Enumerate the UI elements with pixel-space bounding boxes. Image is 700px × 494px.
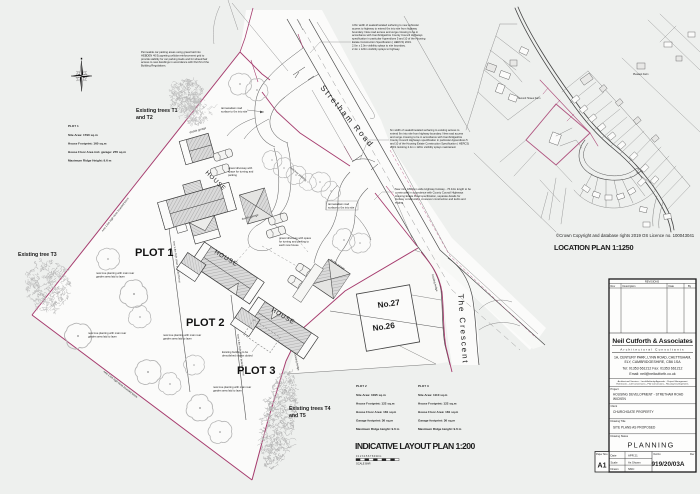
svg-text:SITE PLANS AS PROPOSED: SITE PLANS AS PROPOSED xyxy=(613,425,656,429)
svg-text:Existing tree T3: Existing tree T3 xyxy=(18,252,57,258)
svg-text:Rev: Rev xyxy=(611,284,616,288)
svg-text:Maximum Ridge Height: 9.6 m: Maximum Ridge Height: 9.6 m xyxy=(418,427,462,431)
svg-text:garden area laid to lawn: garden area laid to lawn xyxy=(96,274,125,278)
svg-text:New min. 1800mm wide Highway f: New min. 1800mm wide Highway footway - 7… xyxy=(395,187,471,191)
svg-text:extend 6m into site from highw: extend 6m into site from highway boundar… xyxy=(390,131,464,135)
svg-text:©Crown Copyright and database: ©Crown Copyright and database rights 201… xyxy=(556,233,695,238)
svg-text:and T2: and T2 xyxy=(136,115,153,121)
svg-text:6m width of sealed/metaled sur: 6m width of sealed/metaled surfacing to … xyxy=(390,128,460,132)
svg-text:PLOT 1: PLOT 1 xyxy=(135,247,174,259)
svg-text:Client: Client xyxy=(611,404,618,408)
svg-text:tarmacadam road: tarmacadam road xyxy=(221,106,243,110)
svg-text:919/20/03A: 919/20/03A xyxy=(651,461,684,468)
svg-text:Garage footprint: 36 sq.m: Garage footprint: 36 sq.m xyxy=(418,419,455,423)
svg-text:boundary. New road access and: boundary. New road access and verge cros… xyxy=(352,30,419,34)
svg-text:provide stability for car park: provide stability for car parking loads … xyxy=(141,57,207,61)
svg-text:Estate Construction Specificat: Estate Construction Specification ( HERC… xyxy=(352,40,412,44)
svg-text:Existing building to be: Existing building to be xyxy=(222,350,249,354)
svg-text:Scale: Scale xyxy=(611,460,618,464)
svg-text:Description: Description xyxy=(623,284,637,288)
svg-text:LOCATION PLAN 1:1250: LOCATION PLAN 1:1250 xyxy=(554,243,633,252)
svg-text:PLOT 3: PLOT 3 xyxy=(237,365,276,377)
svg-text:Existing trees T4: Existing trees T4 xyxy=(289,406,331,412)
svg-text:Garage footprint: 36 sq.m: Garage footprint: 36 sq.m xyxy=(356,419,393,423)
svg-text:Drawn: Drawn xyxy=(611,467,620,471)
svg-text:Building Regulations.: Building Regulations. xyxy=(141,64,167,68)
svg-text:House Floor Area incl. garage:: House Floor Area incl. garage: 255 sq.m xyxy=(68,150,126,154)
svg-text:Project: Project xyxy=(611,387,619,391)
svg-text:new tree planting with main re: new tree planting with main rear xyxy=(96,271,134,275)
svg-text:each new house: each new house xyxy=(279,243,299,247)
svg-text:2.4m x 120m visibility splays: 2.4m x 120m visibility splays to highway… xyxy=(352,47,400,51)
svg-text:access to new dwellings in acc: access to new dwellings in accordance wi… xyxy=(141,60,209,64)
svg-text:County Council Highways specif: County Council Highways specification in… xyxy=(390,138,468,142)
svg-text:4.8m width of sealed/metaled s: 4.8m width of sealed/metaled surfacing t… xyxy=(352,23,419,27)
svg-text:ELY, CAMBRIDGESHIRE, CB6 1SA: ELY, CAMBRIDGESHIRE, CB6 1SA xyxy=(624,360,681,364)
svg-text:parking: parking xyxy=(228,173,237,177)
svg-text:Drawing Status: Drawing Status xyxy=(611,434,629,438)
svg-text:new tree planting with main re: new tree planting with main rear xyxy=(213,385,251,389)
svg-text:for turning and parking to: for turning and parking to xyxy=(279,239,309,243)
svg-text:surface to 6m into site: surface to 6m into site xyxy=(328,205,355,209)
svg-text:NMC: NMC xyxy=(628,467,634,471)
svg-text:gravel driveway with: gravel driveway with xyxy=(228,166,253,170)
svg-text:PLOT 3: PLOT 3 xyxy=(418,384,429,388)
svg-text:Housing Estate Road specificat: Housing Estate Road specification, separ… xyxy=(395,194,460,198)
svg-text:CHURCHGATE PROPERTY: CHURCHGATE PROPERTY xyxy=(613,410,654,414)
svg-text:Architectural Services - Local: Architectural Services - Local Authority… xyxy=(618,380,688,383)
svg-text:surface to 6m into site: surface to 6m into site xyxy=(221,109,248,113)
svg-text:constructed in accordance with: constructed in accordance with County Co… xyxy=(395,190,464,194)
svg-text:INDICATIVE LAYOUT PLAN 1:200: INDICATIVE LAYOUT PLAN 1:200 xyxy=(355,441,476,451)
svg-text:PLOT 1: PLOT 1 xyxy=(68,124,79,128)
svg-text:Architectural Consultants: Architectural Consultants xyxy=(620,348,684,352)
svg-text:House Floor Area: 181 sq.m: House Floor Area: 181 sq.m xyxy=(356,410,396,414)
svg-text:PLOT 2: PLOT 2 xyxy=(186,317,225,329)
svg-text:new tree planting with main re: new tree planting with main rear xyxy=(88,331,126,335)
svg-text:Paper Size: Paper Size xyxy=(596,453,608,456)
svg-text:WICKEN: WICKEN xyxy=(613,397,626,401)
svg-text:REVISIONS: REVISIONS xyxy=(645,279,659,283)
svg-text:and 10 of the Housing Estate C: and 10 of the Housing Estate Constructio… xyxy=(390,142,469,146)
svg-text:accordance with Cambridgeshire: accordance with Cambridgeshire County Co… xyxy=(352,33,423,37)
svg-text:space for turning and: space for turning and xyxy=(228,169,254,173)
svg-text:HEBDEN 40 Ecogreting cellular: HEBDEN 40 Ecogreting cellular reinforcem… xyxy=(141,53,205,57)
svg-text:new tree planting with main re: new tree planting with main rear xyxy=(163,333,201,337)
svg-text:garden area laid to lawn: garden area laid to lawn xyxy=(213,388,242,392)
svg-text:APR 21: APR 21 xyxy=(628,454,638,458)
svg-text:Email: neil@neilcutforth.co.uk: Email: neil@neilcutforth.co.uk xyxy=(629,372,675,376)
svg-text:access to highway to extend 6m: access to highway to extend 6m into site… xyxy=(352,26,418,30)
svg-text:PLOT 2: PLOT 2 xyxy=(356,384,367,388)
svg-text:edging.: edging. xyxy=(395,201,404,205)
svg-text:House Floor Area: 181 sq.m: House Floor Area: 181 sq.m xyxy=(418,410,458,414)
svg-text:Dw.No: Dw.No xyxy=(654,453,662,456)
svg-text:Date: Date xyxy=(611,454,617,458)
svg-text:garden area laid to lawn: garden area laid to lawn xyxy=(88,334,117,338)
svg-text:Site Area: 1790 sq.m: Site Area: 1790 sq.m xyxy=(68,133,98,137)
svg-text:tarmacadam road: tarmacadam road xyxy=(328,202,350,206)
svg-text:specification in particular Ap: specification in particular Appendices 5… xyxy=(352,37,426,41)
svg-text:Maximum Ridge Height: 9.6 m: Maximum Ridge Height: 9.6 m xyxy=(356,427,400,431)
svg-text:0 1 2 3 4 5 6 7 8 9: 0 1 2 3 4 5 6 7 8 9 10 m xyxy=(356,455,381,458)
svg-text:2019. Existing 2.4m x 120m vis: 2019. Existing 2.4m x 120m visibility sp… xyxy=(390,145,456,149)
svg-text:1A, CENTURY PARK, LYNN ROAD, C: 1A, CENTURY PARK, LYNN ROAD, CHETTISHAM, xyxy=(614,356,691,360)
svg-text:House Footprint: 160 sq.m: House Footprint: 160 sq.m xyxy=(68,142,107,146)
svg-text:Drawing Title: Drawing Title xyxy=(611,419,627,423)
svg-text:Pleasant Farm: Pleasant Farm xyxy=(633,73,649,76)
svg-text:A1: A1 xyxy=(598,463,607,470)
svg-text:PLANNING: PLANNING xyxy=(628,441,675,450)
svg-text:Tel: 01353 661212 Fax: 01353: Tel: 01353 661212 Fax: 01353 661212 xyxy=(623,367,683,371)
svg-text:Site Area: 1110 sq.m: Site Area: 1110 sq.m xyxy=(418,393,448,397)
svg-text:Neil Cutforth & Associates: Neil Cutforth & Associates xyxy=(612,338,693,345)
svg-text:House Footprint: 122 sq.m: House Footprint: 122 sq.m xyxy=(356,402,395,406)
svg-text:and T5: and T5 xyxy=(289,413,306,419)
svg-text:House Footprint: 122 sq.m: House Footprint: 122 sq.m xyxy=(418,402,457,406)
svg-text:Site Area: 1095 sq.m: Site Area: 1095 sq.m xyxy=(356,393,386,397)
svg-text:Maximum Ridge Height: 9.6 m: Maximum Ridge Height: 9.6 m xyxy=(68,159,112,163)
svg-text:2.0m x 2.0m visibility splays: 2.0m x 2.0m visibility splays to site bo… xyxy=(352,43,406,47)
svg-text:Second Howes Farm: Second Howes Farm xyxy=(518,97,540,100)
svg-text:footway construction, crossove: footway construction, crossover construc… xyxy=(395,197,466,201)
svg-text:HOUSING DEVELOPMENT - STRETH: HOUSING DEVELOPMENT - STRETHAM ROAD xyxy=(613,393,684,397)
svg-text:SCALE BAR: SCALE BAR xyxy=(356,462,371,466)
svg-text:demolished shown dotted: demolished shown dotted xyxy=(222,353,253,357)
svg-text:As Shown: As Shown xyxy=(628,460,641,464)
svg-text:garden area laid to lawn: garden area laid to lawn xyxy=(163,336,192,340)
svg-text:Permeable car parking areas us: Permeable car parking areas using gravel… xyxy=(141,50,201,54)
svg-text:Date: Date xyxy=(669,284,675,288)
svg-text:Existing trees T1: Existing trees T1 xyxy=(136,108,178,114)
svg-text:Extensions - Loft Conversions: Extensions - Loft Conversions - Flat Con… xyxy=(617,383,690,386)
svg-text:and verge crossing to be in ac: and verge crossing to be in accordance w… xyxy=(390,135,463,139)
svg-text:gravel driveway with space: gravel driveway with space xyxy=(279,236,312,240)
